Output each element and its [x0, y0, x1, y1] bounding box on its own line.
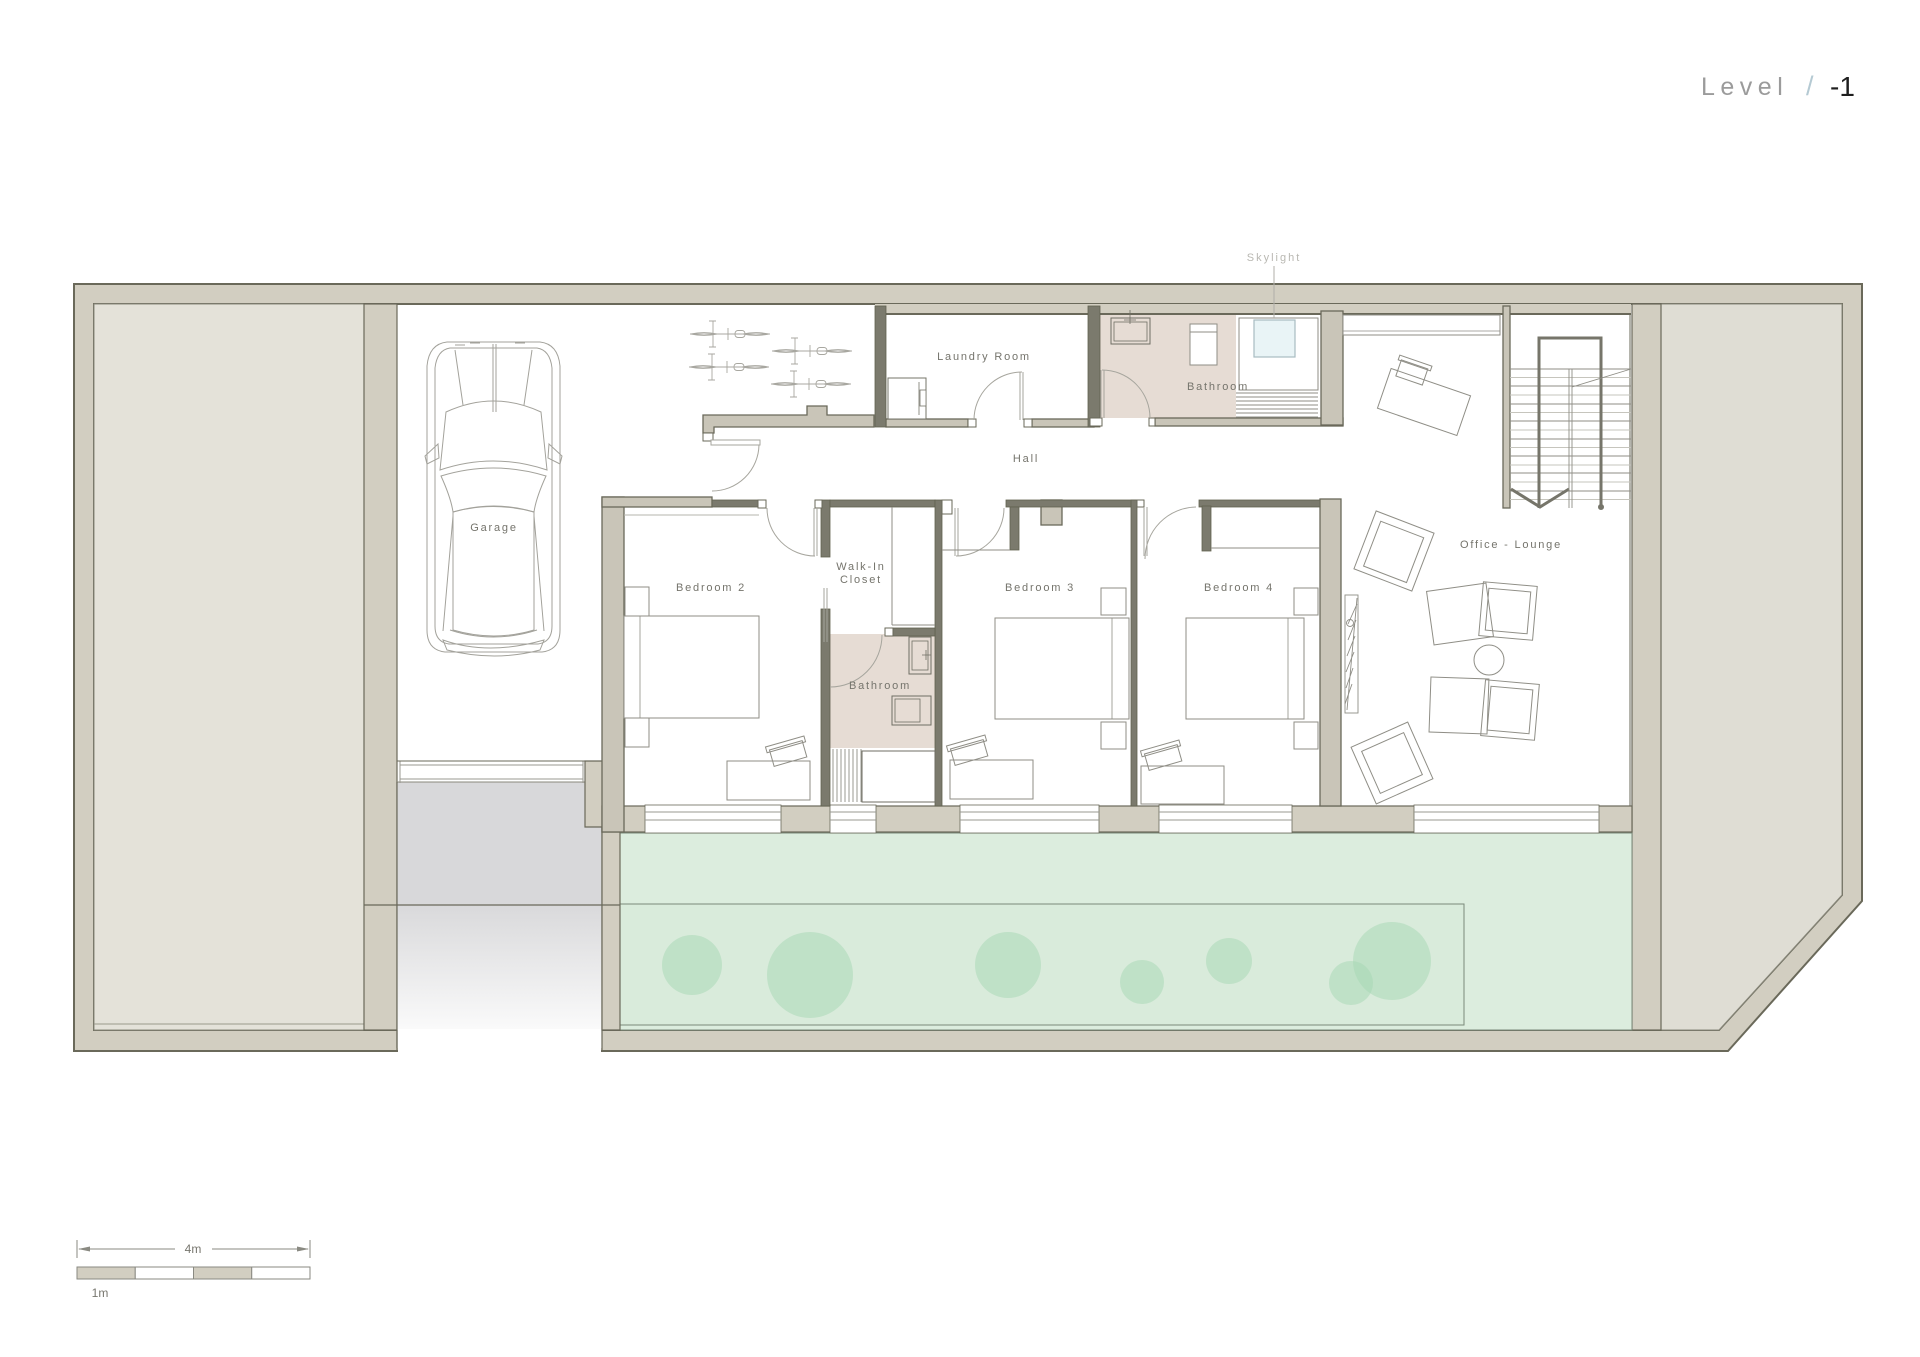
svg-text:/: / — [1806, 71, 1814, 101]
svg-text:Skylight: Skylight — [1247, 252, 1302, 264]
svg-text:1m: 1m — [92, 1286, 109, 1300]
svg-text:Garage: Garage — [470, 522, 518, 534]
svg-text:-1: -1 — [1830, 71, 1855, 102]
svg-text:Level: Level — [1701, 73, 1788, 101]
svg-text:Bathroom: Bathroom — [849, 680, 911, 692]
svg-text:4m: 4m — [185, 1242, 202, 1256]
svg-text:Bathroom: Bathroom — [1187, 381, 1249, 393]
svg-text:Bedroom 4: Bedroom 4 — [1204, 582, 1274, 594]
svg-text:Hall: Hall — [1013, 453, 1039, 465]
svg-text:Walk-In: Walk-In — [836, 561, 885, 573]
svg-text:Office - Lounge: Office - Lounge — [1460, 539, 1562, 551]
svg-text:Bedroom 3: Bedroom 3 — [1005, 582, 1075, 594]
svg-text:Laundry Room: Laundry Room — [937, 351, 1031, 363]
svg-text:Bedroom 2: Bedroom 2 — [676, 582, 746, 594]
svg-text:Closet: Closet — [840, 574, 882, 586]
